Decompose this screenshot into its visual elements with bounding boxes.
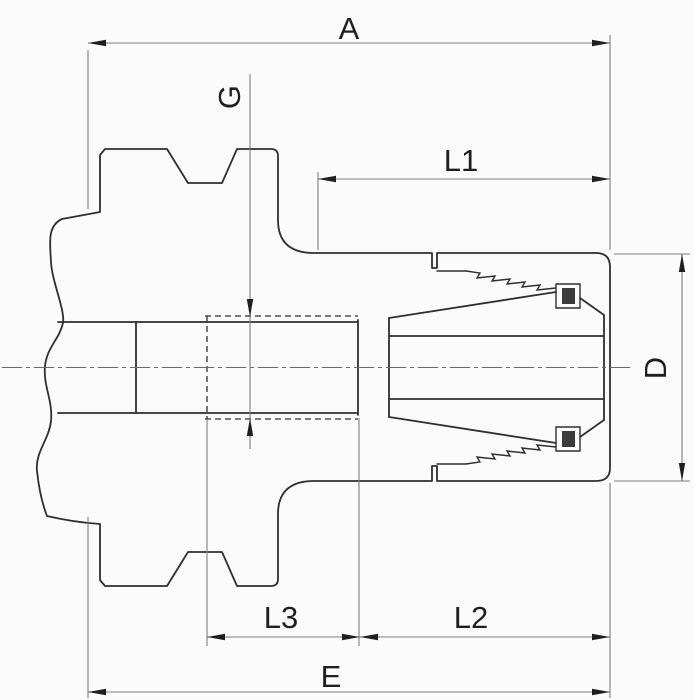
dimension-l1: L1 (318, 143, 610, 250)
dim-l1-label: L1 (444, 143, 478, 178)
dimension-a: A (88, 11, 610, 250)
dim-d-label: D (638, 357, 673, 379)
dim-g-arrow-top (247, 299, 253, 317)
dim-l2-arrow-left (360, 634, 378, 640)
technical-drawing: A G L1 D L3 L2 (0, 0, 694, 700)
dim-g-label: G (212, 85, 247, 109)
collet-nose-chamfer-bottom (580, 420, 604, 437)
dim-l3-label: L3 (264, 600, 298, 635)
dim-l1-arrow-left (318, 176, 336, 182)
dim-d-arrow-bottom (679, 463, 685, 481)
lip-shading-bottom (562, 431, 575, 447)
dimension-e: E (88, 517, 610, 698)
serration-band-bottom (466, 445, 556, 464)
collet-nose-chamfer-top (580, 298, 604, 315)
serration-band-top (466, 271, 556, 290)
dimension-g: G (212, 74, 253, 449)
collet-taper-bottom (389, 417, 556, 443)
dim-d-arrow-top (679, 254, 685, 272)
dim-a-arrow-right (592, 40, 610, 46)
dim-e-arrow-right (592, 689, 610, 695)
dim-l2-label: L2 (454, 600, 488, 635)
dim-e-arrow-left (88, 689, 106, 695)
dim-l3-arrow-left (207, 634, 225, 640)
collet-taper-top (389, 292, 556, 318)
lip-shading-top (562, 288, 575, 304)
dim-l2-arrow-right (592, 634, 610, 640)
dim-e-label: E (321, 659, 342, 694)
dim-l3-arrow-right (342, 634, 360, 640)
dim-a-arrow-left (88, 40, 106, 46)
dimension-l3: L3 (207, 418, 360, 646)
dim-a-label: A (339, 11, 360, 46)
dim-g-arrow-bottom (247, 418, 253, 436)
dim-l1-arrow-right (592, 176, 610, 182)
dimension-l2: L2 (360, 483, 610, 698)
